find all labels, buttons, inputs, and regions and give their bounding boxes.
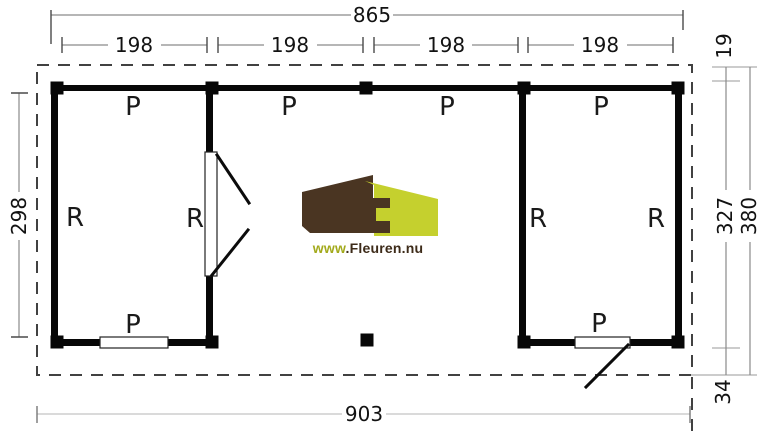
post-back-5 bbox=[672, 82, 685, 95]
double-door-room1-frame bbox=[205, 152, 217, 276]
label-r-room1-right: R bbox=[186, 204, 204, 234]
floor-plan-drawing: 865 198 198 198 198 298 bbox=[0, 0, 770, 436]
dim-bay-3-value: 198 bbox=[427, 33, 465, 57]
label-p-room1-front: P bbox=[125, 310, 141, 340]
logo-url-suffix: .Fleuren.nu bbox=[346, 240, 424, 256]
post-front-1 bbox=[51, 336, 64, 349]
post-front-2 bbox=[206, 336, 219, 349]
post-veranda bbox=[361, 334, 374, 347]
logo-house-brown-icon bbox=[302, 175, 373, 233]
dim-right-overhang-top-value: 19 bbox=[712, 33, 736, 58]
label-p-bay3: P bbox=[439, 92, 455, 122]
post-back-2 bbox=[206, 82, 219, 95]
dim-right-total-value: 380 bbox=[737, 197, 761, 235]
logo-url-text: www.Fleuren.nu bbox=[312, 240, 423, 256]
floor-plan-page: 865 198 198 198 198 298 bbox=[0, 0, 770, 436]
dim-bays: 198 198 198 198 bbox=[62, 33, 673, 57]
wall-right bbox=[675, 85, 682, 348]
door-room2-swing bbox=[586, 345, 628, 387]
post-back-1 bbox=[51, 82, 64, 95]
label-p-bay2: P bbox=[281, 92, 297, 122]
dim-right-stack: 19 327 380 34 bbox=[684, 33, 761, 404]
logo-url-prefix: www bbox=[312, 240, 346, 256]
label-r-room2-right: R bbox=[647, 204, 665, 234]
post-front-4 bbox=[672, 336, 685, 349]
dim-right-wall-height-value: 327 bbox=[713, 197, 737, 235]
label-r-room2-left: R bbox=[529, 204, 547, 234]
wall-room2-left bbox=[519, 85, 526, 348]
fleuren-logo: www.Fleuren.nu bbox=[302, 175, 438, 256]
label-p-room2-front: P bbox=[591, 309, 607, 339]
post-back-4 bbox=[518, 82, 531, 95]
post-back-3 bbox=[360, 82, 373, 95]
post-front-3 bbox=[518, 336, 531, 349]
dim-left-height-value: 298 bbox=[7, 197, 31, 235]
dim-bay-4-value: 198 bbox=[581, 33, 619, 57]
wall-left bbox=[51, 85, 58, 348]
double-door-room1-swing-top bbox=[217, 155, 249, 203]
dim-right-overhang-bottom-value: 34 bbox=[711, 379, 735, 404]
label-r-room1-left: R bbox=[66, 203, 84, 233]
label-p-bay1: P bbox=[125, 92, 141, 122]
dim-bottom-total: 903 bbox=[37, 402, 690, 426]
wall-room1-right-upper bbox=[206, 85, 213, 152]
dim-left-height: 298 bbox=[7, 93, 31, 337]
dim-top-total-value: 865 bbox=[353, 3, 391, 27]
dim-bay-2-value: 198 bbox=[271, 33, 309, 57]
dim-bottom-total-value: 903 bbox=[345, 402, 383, 426]
dim-bay-1-value: 198 bbox=[115, 33, 153, 57]
label-p-bay4: P bbox=[593, 92, 609, 122]
